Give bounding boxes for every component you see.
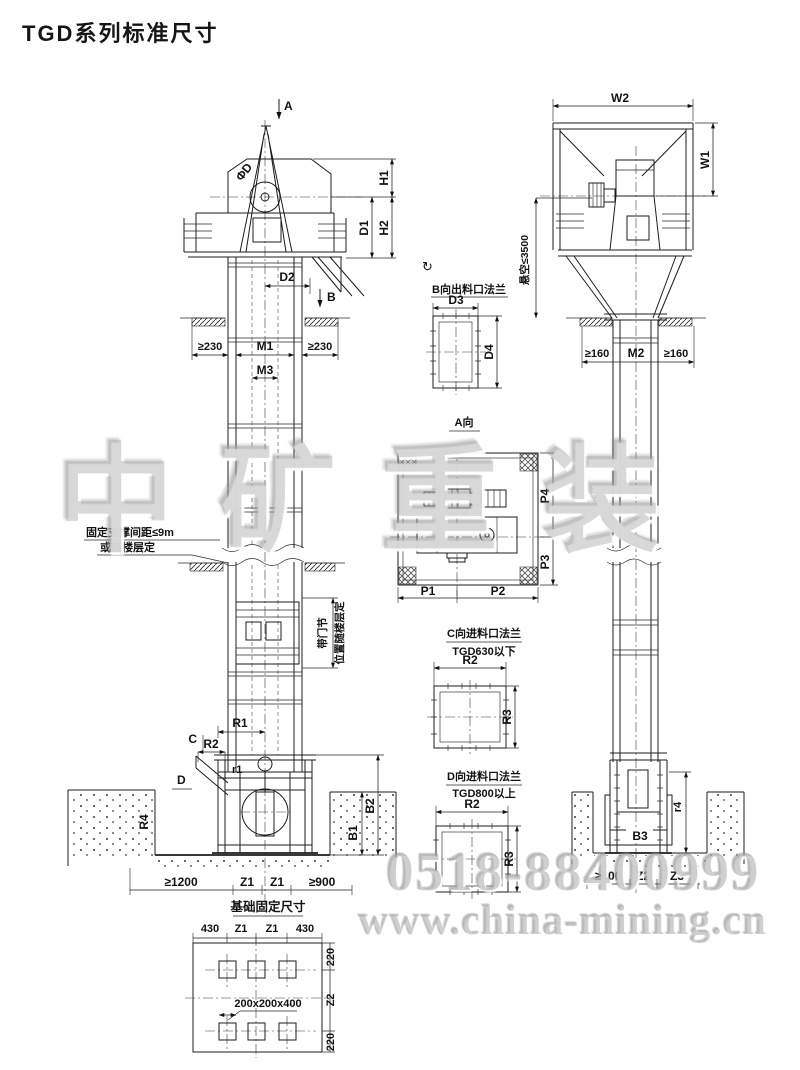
dim-r1-small: r1 [232,764,242,776]
dim-m1: M1 [257,339,274,353]
dim-h2: H2 [377,220,391,236]
dim-gte800: ≥800 [595,869,622,883]
fdim-220a: 220 [325,948,337,966]
dim-d-r2: R2 [464,797,480,811]
detail-view-a: A向 P1 P2 P4 [390,415,558,603]
dim-p2: P2 [491,584,506,598]
detail-inlet-flange-c: C向进料口法兰 TGD630以下 R2 R3 [427,626,522,754]
dim-z3: Z3 [670,869,684,883]
section-c-label: C [188,732,197,746]
fdim-z1a: Z1 [235,923,248,935]
foundation-plan: 基础固定尺寸 430 Z1 Z1 430 200x200x400 220 Z2 … [185,899,337,1058]
fdim-430b: 430 [296,923,314,935]
dim-p4: P4 [538,488,552,503]
dim-gte230-right: ≥230 [308,341,332,353]
pulley-diameter-label: ΦD [233,160,256,183]
dim-gte160-right: ≥160 [664,348,688,360]
door-note-line2: 位置随楼层定 [333,601,346,664]
dim-d3: D3 [448,293,464,307]
dim-gte900: ≥900 [309,875,336,889]
fdim-220b: 220 [325,1033,337,1051]
dim-c-r3: R3 [500,709,514,725]
dim-d-r3: R3 [502,851,516,867]
dim-z2: Z2 [636,869,650,883]
inlet-d-subtitle: TGD800以上 [452,786,516,800]
inlet-c-title: C向进料口法兰 [447,626,521,640]
dim-p3: P3 [538,554,552,569]
dim-r1: R1 [232,716,248,730]
dim-gte230-left: ≥230 [198,341,222,353]
dim-gte1200: ≥1200 [164,875,198,889]
dim-w2: W2 [611,91,629,105]
section-b-label: B [327,290,336,304]
dim-h1: H1 [377,170,391,186]
dim-m2: M2 [628,346,645,360]
section-d-label: D [177,773,186,787]
dim-p1: P1 [421,584,436,598]
dim-b3: B3 [632,829,648,843]
fdim-430a: 430 [201,923,219,935]
rotate-icon: ↻ [422,260,433,275]
dim-z1b: Z1 [270,875,284,889]
dim-r2: R2 [203,737,219,751]
dim-b1: B1 [346,825,360,841]
dim-c-r2: R2 [462,653,478,667]
view-a-title: A向 [455,415,474,429]
foundation-title: 基础固定尺寸 [229,899,306,914]
anchor-hole-size: 200x200x400 [234,998,301,1010]
dim-d4: D4 [482,344,496,360]
inlet-d-title: D向进料口法兰 [447,769,521,783]
drawing-canvas: TGD系列标准尺寸 A ΦD [0,0,800,1070]
dim-gte160-left: ≥160 [585,348,609,360]
dim-r4: R4 [137,814,151,830]
dim-b2: B2 [363,798,377,814]
section-a-label: A [284,99,293,113]
detail-inlet-flange-d: D向进料口法兰 TGD800以上 R2 R3 [429,769,522,899]
dim-m3: M3 [257,363,274,377]
fdim-z2: Z2 [325,994,337,1007]
left-elevation-view: A ΦD H1 H2 D1 D2 B [68,99,396,905]
dim-d2: D2 [279,270,295,284]
dim-r4-small: r4 [672,801,684,812]
support-note-line1: 固定支撑间距≤9m [86,525,174,539]
suspend-note: 悬空≤3500 [518,235,531,286]
dim-z1a: Z1 [240,875,254,889]
support-note-line2: 或随楼层定 [100,540,155,554]
fdim-z1b: Z1 [266,923,279,935]
outlet-flange-title: B向出料口法兰 [432,282,506,296]
elevator-drawing: A ΦD H1 H2 D1 D2 B [0,0,800,1070]
dim-d1: D1 [357,220,371,236]
door-note-line1: 带门节 [316,617,329,649]
dim-w1: W1 [698,151,712,169]
detail-outlet-flange-b: ↻ B向出料口法兰 D3 D4 [422,260,508,395]
